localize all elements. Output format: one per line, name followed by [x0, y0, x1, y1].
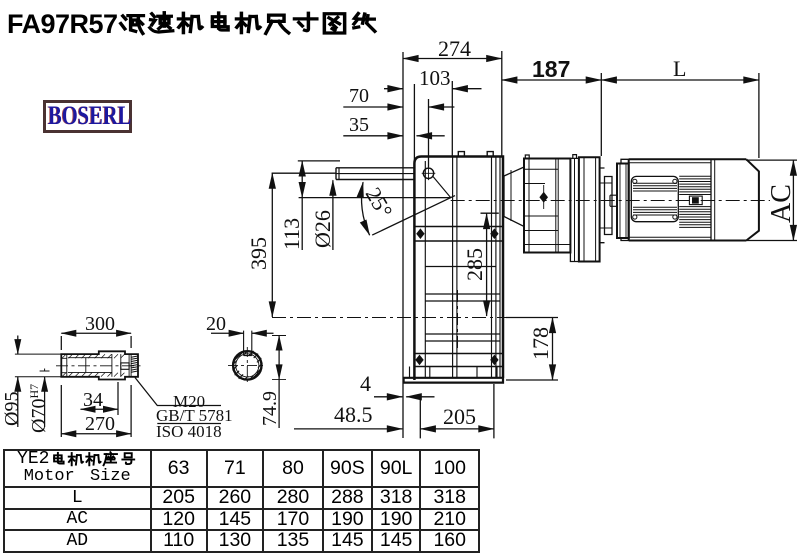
svg-text:395: 395 [246, 237, 271, 270]
svg-text:187: 187 [532, 56, 570, 82]
svg-text:113: 113 [279, 218, 304, 250]
svg-text:35: 35 [349, 114, 369, 136]
svg-text:Ø70H7: Ø70H7 [27, 384, 50, 433]
svg-text:34: 34 [83, 389, 103, 411]
svg-text:Ø95: Ø95 [1, 392, 23, 426]
svg-text:Ø26: Ø26 [310, 210, 335, 248]
svg-text:ISO 4018: ISO 4018 [156, 422, 222, 441]
svg-text:20: 20 [206, 313, 226, 335]
svg-text:205: 205 [443, 404, 476, 429]
svg-text:178: 178 [528, 327, 553, 360]
svg-text:AC: AC [766, 184, 797, 223]
svg-text:270: 270 [85, 413, 115, 435]
svg-text:103: 103 [419, 66, 451, 90]
svg-text:285: 285 [462, 248, 487, 281]
svg-text:25°: 25° [361, 183, 398, 222]
svg-text:L: L [673, 56, 686, 81]
svg-text:4: 4 [360, 371, 371, 396]
svg-text:300: 300 [85, 313, 115, 335]
svg-text:48.5: 48.5 [334, 402, 373, 427]
svg-text:74.9: 74.9 [259, 391, 281, 426]
svg-text:274: 274 [438, 36, 471, 61]
svg-text:70: 70 [349, 85, 369, 107]
